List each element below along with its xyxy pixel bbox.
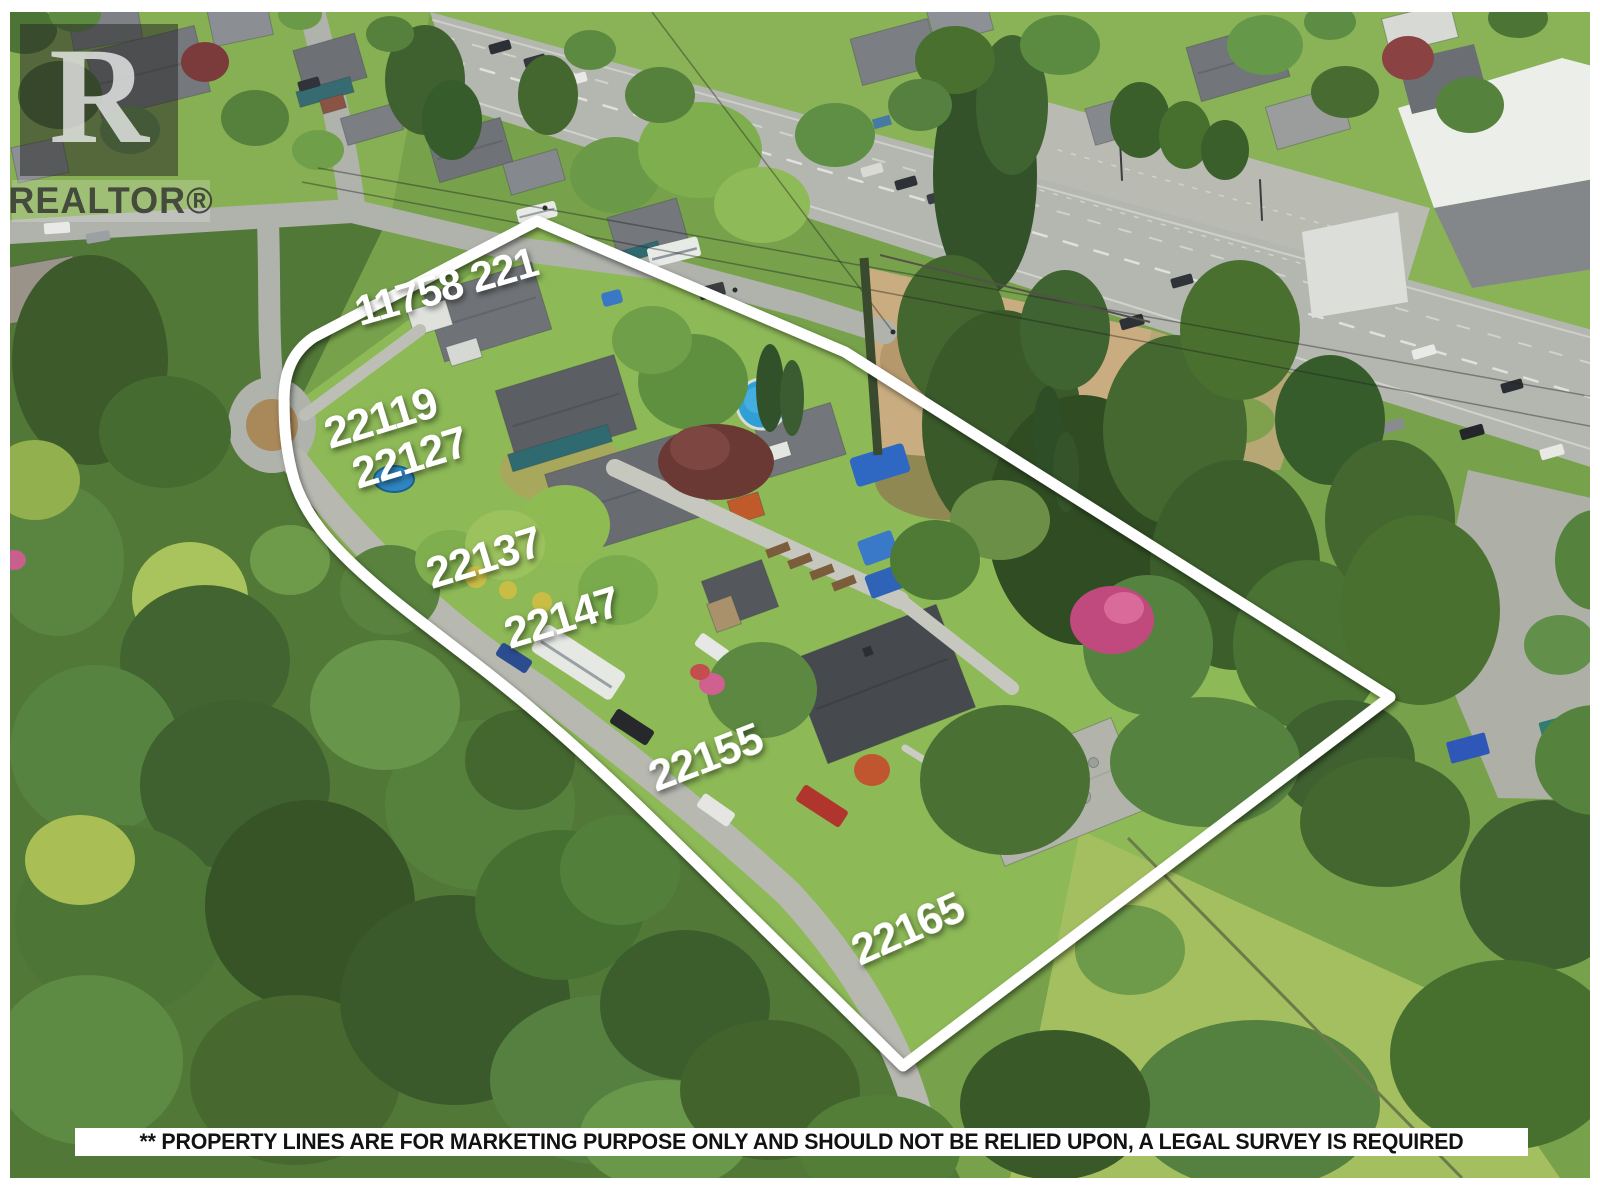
disclaimer-text: ** PROPERTY LINES ARE FOR MARKETING PURP…: [139, 1129, 1463, 1155]
listing-photo-page: 11758 221 22119 22127 22137 22147 22155 …: [0, 0, 1600, 1200]
disclaimer-bar: ** PROPERTY LINES ARE FOR MARKETING PURP…: [75, 1128, 1528, 1156]
aerial-scene: 11758 221 22119 22127 22137 22147 22155 …: [10, 12, 1590, 1178]
aerial-photo: 11758 221 22119 22127 22137 22147 22155 …: [10, 12, 1590, 1178]
